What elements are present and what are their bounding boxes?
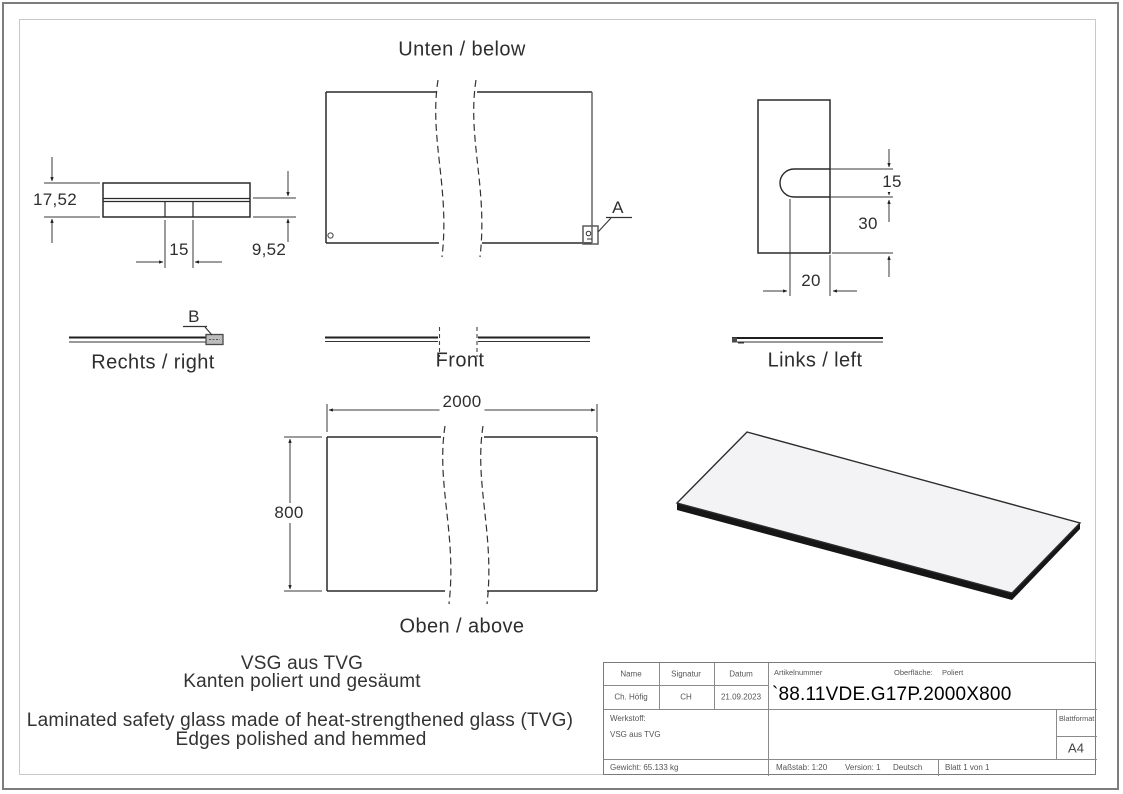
tb-name-value: Ch. Höfig bbox=[614, 693, 647, 702]
tb-line bbox=[1056, 736, 1097, 737]
oben-view bbox=[284, 404, 597, 604]
unten-view bbox=[326, 80, 632, 257]
unten-view-label: Unten / below bbox=[398, 39, 526, 62]
links-view-label: Links / left bbox=[768, 350, 863, 373]
slot-detail-view bbox=[758, 100, 893, 296]
tb-artikelnummer-label: Artikelnummer bbox=[774, 668, 822, 677]
dim-thickness-total: 17,52 bbox=[33, 190, 77, 210]
tb-line bbox=[604, 709, 1097, 710]
tb-werkstoff-label: Werkstoff: bbox=[610, 714, 646, 723]
dim-slot-width-side: 15 bbox=[169, 240, 189, 260]
tb-line bbox=[604, 759, 1097, 760]
dim-slot-width: 15 bbox=[879, 172, 905, 192]
tb-blattformat-label: Blattformat bbox=[1059, 714, 1094, 723]
dim-width: 800 bbox=[271, 503, 306, 523]
tb-datum-value: 21.09.2023 bbox=[721, 693, 761, 702]
tb-werkstoff-value: VSG aus TVG bbox=[610, 730, 661, 739]
tb-massstab: Maßstab: 1:20 bbox=[776, 763, 827, 772]
tb-oberflaeche-label: Oberfläche: bbox=[894, 668, 933, 677]
callout-b: B bbox=[188, 307, 200, 327]
tb-artikelnummer-value: `88.11VDE.G17P.2000X800 bbox=[772, 684, 1011, 706]
dim-pane-thickness: 9,52 bbox=[252, 240, 286, 260]
callout-a: A bbox=[612, 198, 624, 218]
tb-blatt: Blatt 1 von 1 bbox=[945, 763, 989, 772]
rechts-view-label: Rechts / right bbox=[91, 352, 214, 375]
tb-line bbox=[1056, 709, 1057, 759]
dim-slot-offset: 30 bbox=[858, 214, 878, 234]
left-edge-view bbox=[732, 338, 883, 344]
note-en-line2: Edges polished and hemmed bbox=[175, 729, 426, 751]
title-block: Name Signatur Datum Ch. Höfig CH 21.09.2… bbox=[603, 662, 1096, 775]
tb-line bbox=[659, 663, 660, 709]
tb-oberflaeche-value: Poliert bbox=[942, 668, 963, 677]
tb-signatur-value: CH bbox=[680, 693, 692, 702]
oben-view-label: Oben / above bbox=[400, 616, 525, 639]
dim-slot-depth: 20 bbox=[801, 271, 821, 291]
tb-blattformat-value: A4 bbox=[1068, 741, 1084, 756]
tb-line bbox=[604, 685, 768, 686]
drawing-sheet: Unten / below Rechts / right Front Links… bbox=[0, 0, 1123, 794]
dim-length: 2000 bbox=[439, 392, 484, 412]
isometric-view bbox=[677, 432, 1080, 600]
tb-name-label: Name bbox=[620, 670, 641, 679]
tb-sprache: Deutsch bbox=[893, 763, 922, 772]
tb-datum-label: Datum bbox=[729, 670, 753, 679]
front-view-label: Front bbox=[436, 350, 485, 373]
right-edge-view bbox=[69, 327, 223, 345]
tb-signatur-label: Signatur bbox=[671, 670, 701, 679]
detail-a-marker bbox=[583, 218, 632, 245]
tb-gewicht: Gewicht: 65.133 kg bbox=[610, 763, 678, 772]
note-de-line2: Kanten poliert und gesäumt bbox=[183, 671, 421, 693]
tb-line bbox=[938, 759, 939, 776]
tb-version: Version: 1 bbox=[845, 763, 881, 772]
tb-line bbox=[714, 663, 715, 709]
